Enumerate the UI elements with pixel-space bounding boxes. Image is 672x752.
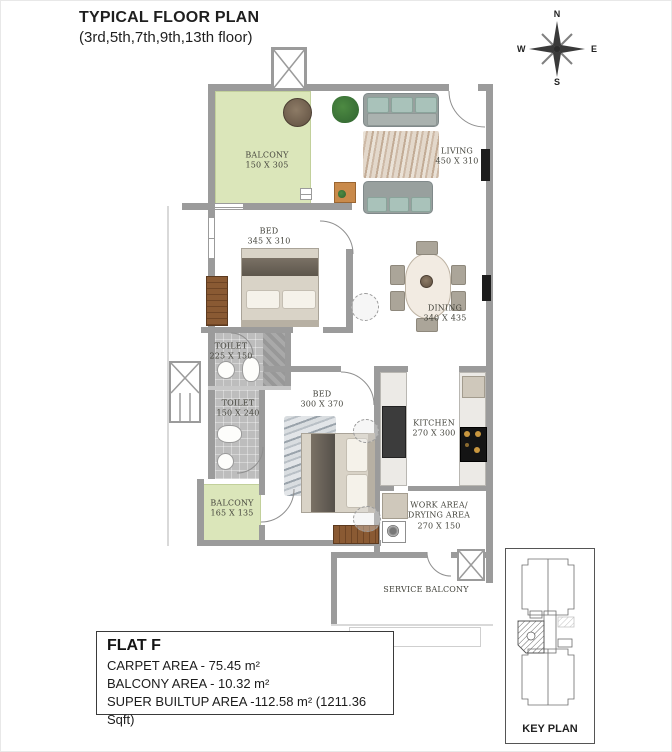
wall-top-right-stub xyxy=(478,84,493,91)
stair-shaft xyxy=(169,361,201,423)
drain-icon xyxy=(300,188,312,200)
sofa-top-cushion xyxy=(367,97,389,113)
wall-service-top-left xyxy=(331,552,427,558)
carpet-area: CARPET AREA - 75.45 m² xyxy=(107,657,383,675)
bed1-wardrobe xyxy=(206,276,228,326)
wall-top xyxy=(208,84,449,91)
bed1-blanket xyxy=(242,258,318,276)
toilet2-basin xyxy=(217,453,234,470)
balcony-area: BALCONY AREA - 10.32 m² xyxy=(107,675,383,693)
wall-toilet2-right xyxy=(259,390,265,479)
elevator-shaft xyxy=(271,47,307,91)
room-label-balcony1: BALCONY 150 X 305 xyxy=(245,151,288,172)
dining-chair xyxy=(390,291,405,311)
wall-bed1-bottom-right xyxy=(323,327,353,333)
tv-unit xyxy=(481,149,490,181)
compass-north-label: N xyxy=(554,9,561,19)
key-plan-label: KEY PLAN xyxy=(506,723,594,735)
room-label-work-area: WORK AREA/ DRYING AREA 270 X 150 xyxy=(408,500,470,531)
balcony-chair xyxy=(283,98,312,127)
wall-balcony2-top-stub xyxy=(259,479,265,495)
wall-left-balcony2 xyxy=(197,479,204,546)
key-plan-drawing xyxy=(506,549,593,714)
room-label-bed1: BED 345 X 310 xyxy=(247,227,290,248)
wall-service-left xyxy=(331,558,337,626)
floor-plan-page: TYPICAL FLOOR PLAN (3rd,5th,7th,9th,13th… xyxy=(0,0,672,752)
washing-machine xyxy=(382,521,406,543)
plant-sketch-icon xyxy=(351,293,379,321)
compass-west-label: W xyxy=(517,44,526,54)
wall-bed2-top xyxy=(264,366,341,372)
work-area-shelf xyxy=(382,493,408,519)
kitchen-cabinet xyxy=(462,376,485,398)
room-label-living: LIVING 450 X 310 xyxy=(435,147,478,168)
dining-chair xyxy=(390,265,405,285)
room-label-toilet1: TOILET 225 X 150 xyxy=(209,342,252,363)
page-subtitle: (3rd,5th,7th,9th,13th floor) xyxy=(79,29,252,46)
bed1-pillow xyxy=(282,290,316,309)
hob-burner xyxy=(464,431,470,437)
service-door-arc xyxy=(427,552,451,576)
duct-shaft xyxy=(457,549,485,581)
wall-toilet-separator xyxy=(208,386,291,390)
wall-bed1-right xyxy=(346,249,353,331)
bed2-pillow xyxy=(346,474,368,508)
sofa-top-cushion xyxy=(391,97,413,113)
plant-sketch-icon xyxy=(353,506,381,532)
wall-kitchen-work xyxy=(408,486,486,491)
dining-centerpiece xyxy=(420,275,433,288)
window-bed1 xyxy=(208,217,215,259)
toilet2-wc xyxy=(217,425,242,443)
page-title: TYPICAL FLOOR PLAN xyxy=(79,9,259,27)
sofa-bottom-cushion xyxy=(389,197,409,212)
sofa-bottom-cushion xyxy=(367,197,387,212)
wall-kitchen-work-left xyxy=(380,486,394,491)
hob-burner xyxy=(474,447,480,453)
room-label-dining: DINING 340 X 435 xyxy=(423,304,466,325)
hob-burner xyxy=(465,443,469,447)
bed2-headboard xyxy=(368,433,375,513)
room-label-balcony2: BALCONY 165 X 135 xyxy=(210,499,253,520)
room-label-toilet2: TOILET 150 X 240 xyxy=(216,399,259,420)
kitchen-sink-unit xyxy=(382,406,406,458)
room-label-bed2: BED 300 X 370 xyxy=(300,390,343,411)
room-label-kitchen: KITCHEN 270 X 300 xyxy=(412,419,455,440)
wall-balcony1-bottom xyxy=(182,203,352,210)
dining-chair xyxy=(451,265,466,285)
wall-toilet1-right xyxy=(285,331,291,389)
window-balcony1 xyxy=(214,203,244,210)
toilet1-basin xyxy=(217,361,235,379)
hob-burner xyxy=(475,431,481,437)
wall-left-balcony1 xyxy=(208,91,215,204)
flat-name: FLAT F xyxy=(107,637,383,655)
service-balcony-edge xyxy=(331,624,493,626)
key-plan-box: KEY PLAN xyxy=(505,548,595,744)
bed1-pillow xyxy=(246,290,280,309)
sofa-top-cushion xyxy=(415,97,437,113)
sofa-bottom-cushion xyxy=(411,197,431,212)
plant-sketch-icon xyxy=(353,419,379,443)
flat-info-box: FLAT F CARPET AREA - 75.45 m² BALCONY AR… xyxy=(96,631,394,715)
sofa-top-seat xyxy=(367,113,437,126)
compass-rose-icon: N S W E xyxy=(517,9,597,89)
living-rug xyxy=(363,131,439,178)
console-unit xyxy=(482,275,491,301)
bed1-headboard xyxy=(241,320,319,327)
bed2-pillow xyxy=(346,438,368,472)
plant-icon xyxy=(332,96,359,123)
bed2-door-arc xyxy=(341,372,374,405)
room-label-service-balcony: SERVICE BALCONY xyxy=(383,585,468,595)
compass-east-label: E xyxy=(591,44,597,54)
bed2-blanket xyxy=(311,434,335,512)
entrance-door-arc xyxy=(449,91,485,127)
super-builtup-area: SUPER BUILTUP AREA -112.58 m² (1211.36 S… xyxy=(107,693,383,729)
compass-south-label: S xyxy=(554,77,560,87)
side-table-plant-icon xyxy=(338,190,346,198)
dining-chair xyxy=(416,241,438,255)
